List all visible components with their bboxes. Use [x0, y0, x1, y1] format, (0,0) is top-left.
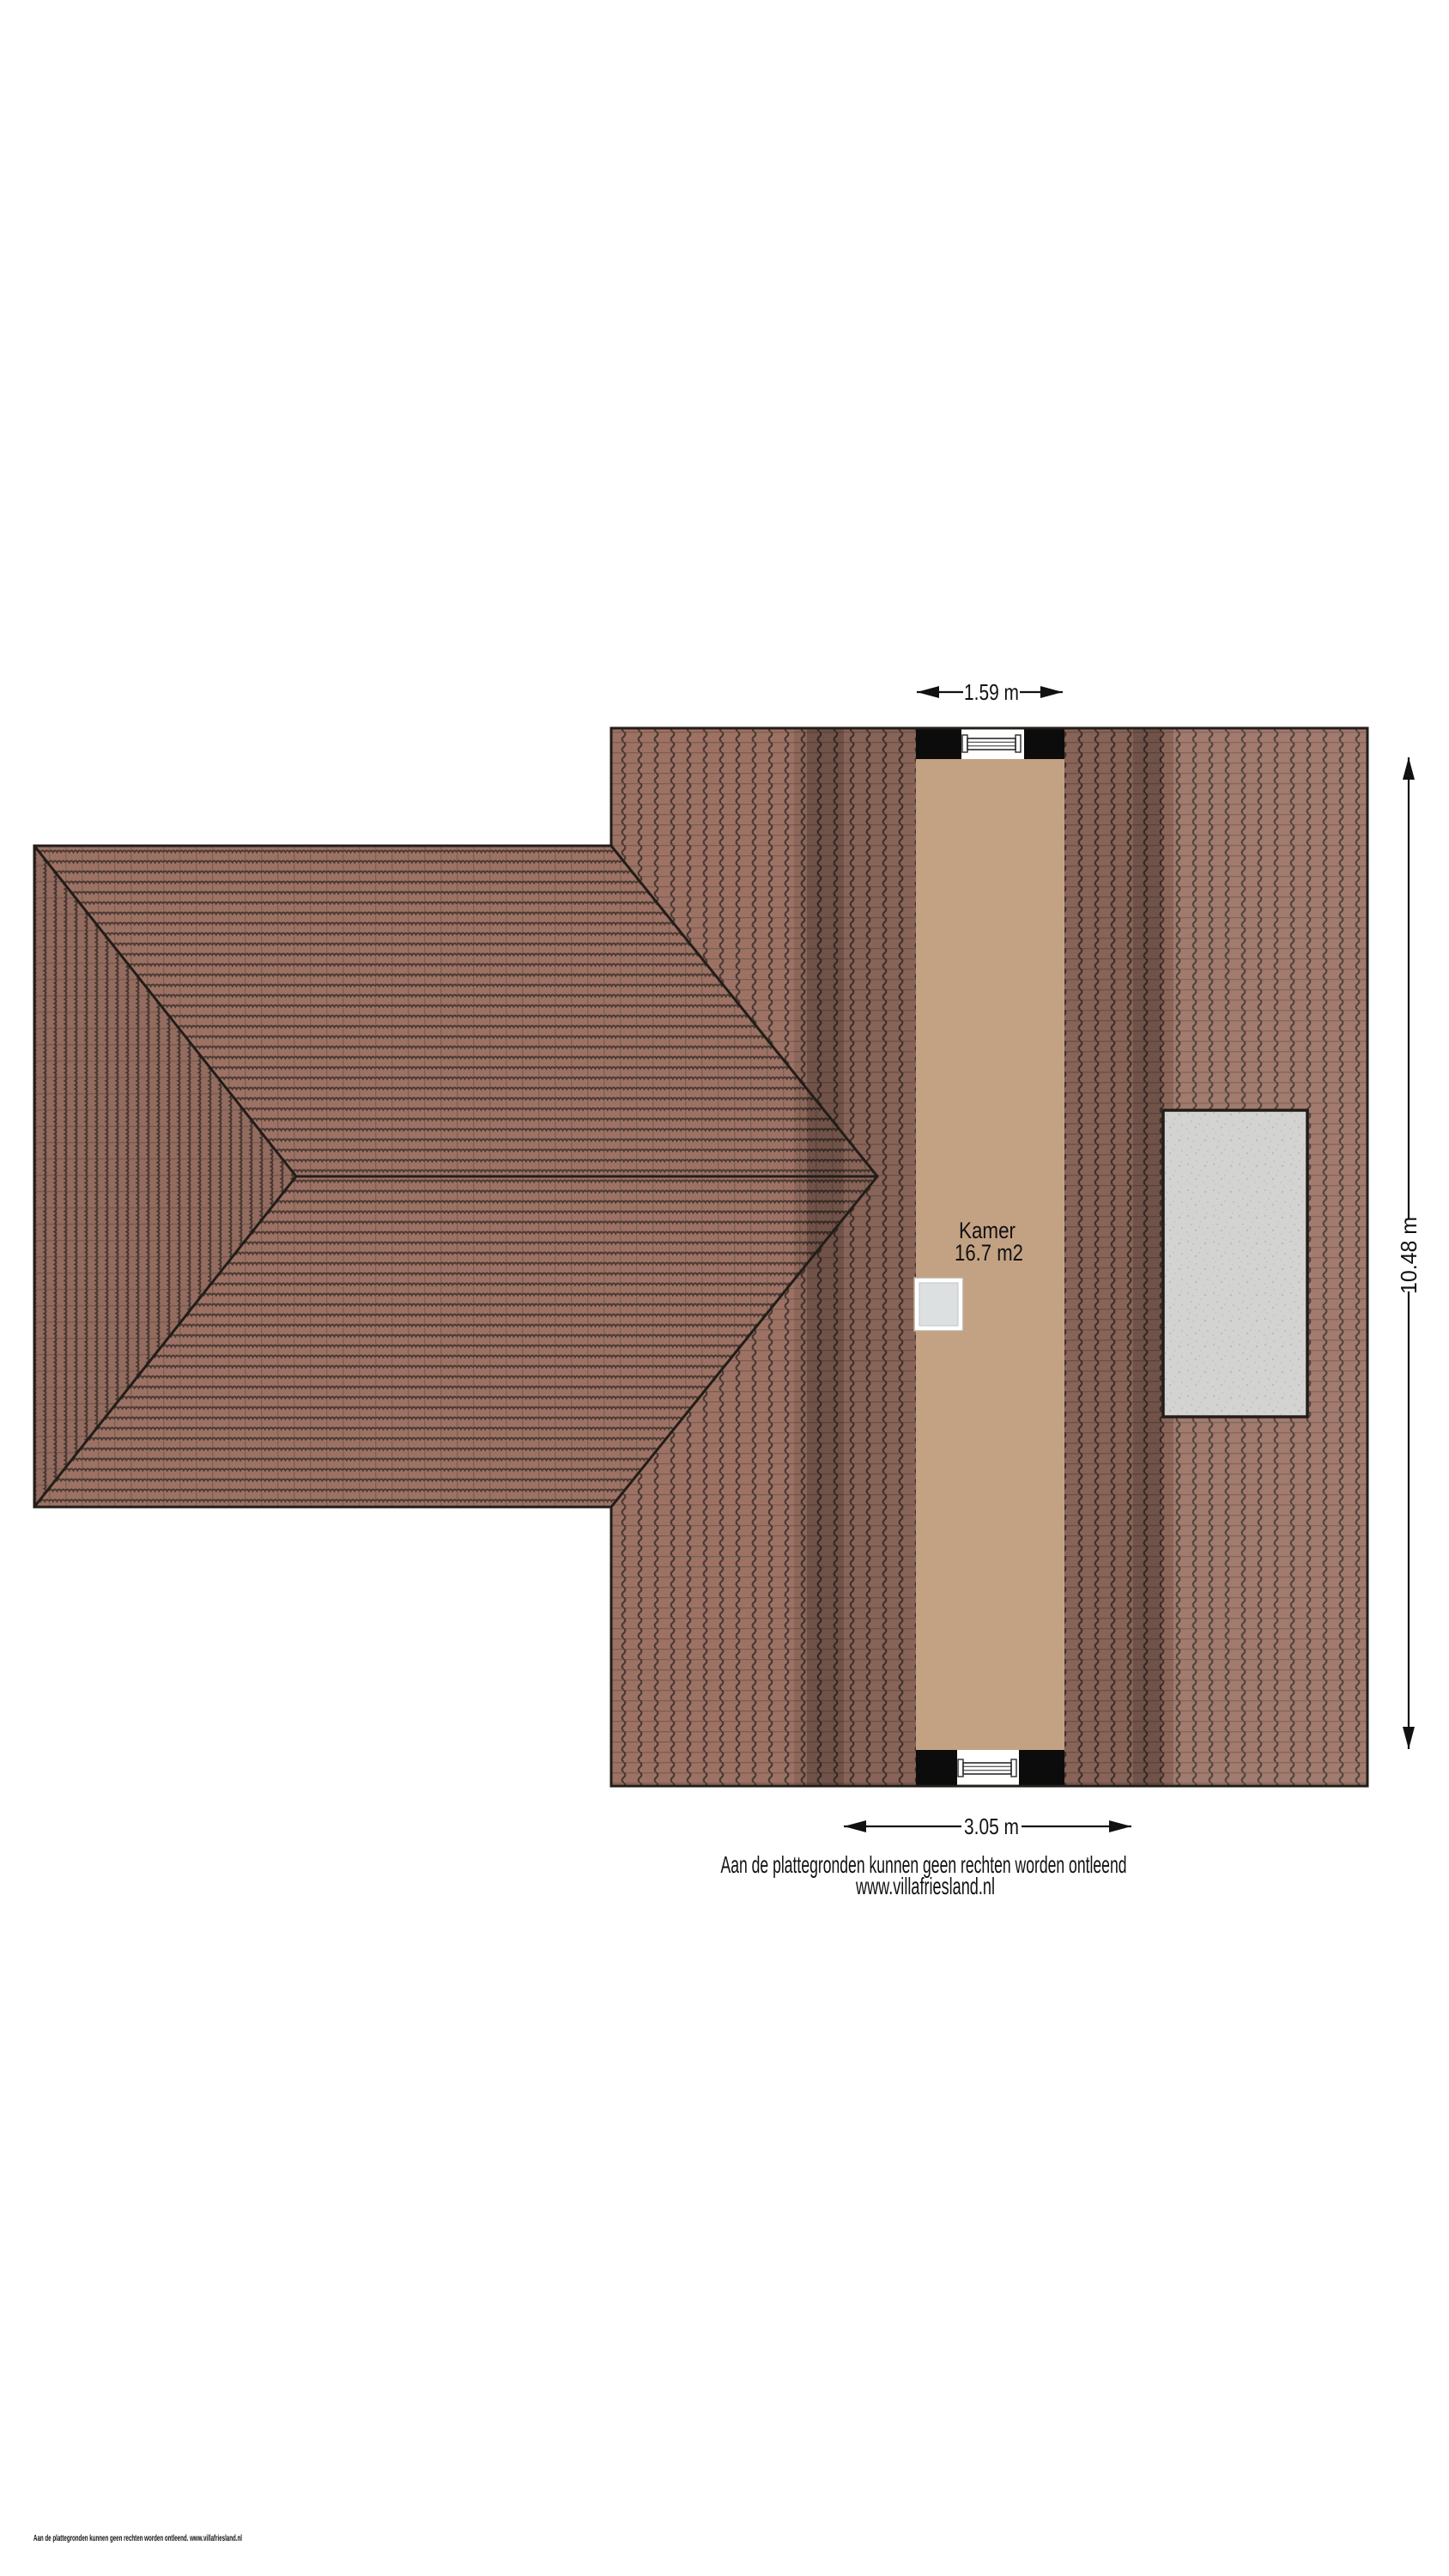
flat-roof-slab [1163, 1110, 1307, 1417]
dimension-top: 1.59 m [917, 679, 1063, 705]
dormer-bottom-left-block [916, 1750, 957, 1786]
roof-shadow-band [1133, 728, 1161, 1786]
room-area-label: 16.7 m2 [955, 1240, 1023, 1266]
roof-shadow-band [844, 728, 916, 1786]
arrowhead-right [1109, 1820, 1131, 1832]
arrowhead-down [1403, 1727, 1415, 1749]
dormer-top-left-block [916, 728, 961, 759]
flat-roof-section [1163, 1110, 1307, 1417]
roof-shadow-band [794, 728, 807, 1786]
arrowhead-right [1040, 686, 1063, 698]
floorplan-canvas: Kamer 16.7 m2 1.59 m 3.05 m 10.48 m Aan … [0, 0, 1449, 2576]
disclaimer-line2: www.villafriesland.nl [855, 1873, 995, 1899]
window-end-cap [962, 735, 967, 752]
footer-note: Aan de plattegronden kunnen geen rechten… [33, 2534, 242, 2543]
dormer-bottom-right-block [1019, 1750, 1064, 1786]
dimension-bottom-label: 3.05 m [964, 1814, 1019, 1839]
dormer-top-right-block [1024, 728, 1064, 759]
skylight-glass [919, 1283, 958, 1326]
window-end-cap [1011, 1759, 1016, 1777]
skylight [914, 1278, 963, 1331]
dormer-bottom [916, 1750, 1064, 1786]
window-end-cap [958, 1759, 963, 1777]
window-end-cap [1016, 735, 1021, 752]
arrowhead-left [844, 1820, 866, 1832]
arrowhead-up [1403, 757, 1415, 780]
disclaimer: Aan de plattegronden kunnen geen rechten… [721, 1851, 1127, 1899]
roof-shadow-band [1064, 728, 1133, 1786]
dimension-right: 10.48 m [1396, 757, 1422, 1749]
roof-plan: Kamer 16.7 m2 [34, 728, 1367, 1786]
dimension-top-label: 1.59 m [964, 679, 1019, 705]
dormer-top [916, 728, 1064, 759]
window-frame [963, 1763, 1011, 1774]
dimension-right-label: 10.48 m [1396, 1217, 1422, 1294]
dimension-bottom: 3.05 m [844, 1814, 1131, 1839]
arrowhead-left [917, 686, 939, 698]
window-frame [967, 738, 1016, 750]
